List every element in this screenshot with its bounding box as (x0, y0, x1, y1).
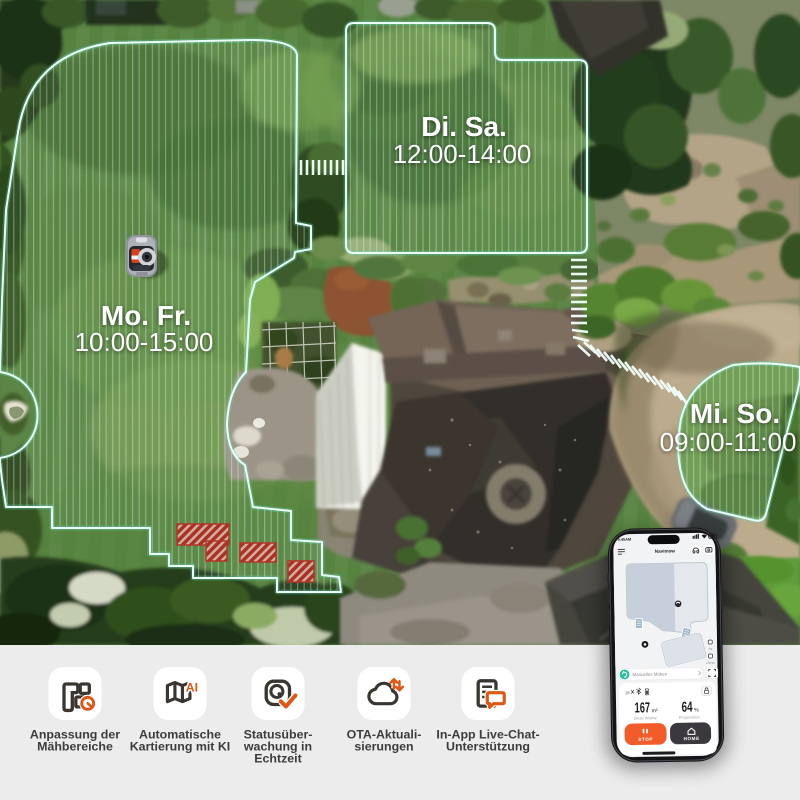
svg-text:12:00-14:00: 12:00-14:00 (393, 139, 532, 169)
svg-text:HOME: HOME (684, 736, 700, 741)
svg-text:10:00-15:00: 10:00-15:00 (75, 327, 214, 357)
svg-text:m²: m² (652, 708, 658, 714)
svg-text:Unterstützung: Unterstützung (446, 740, 530, 754)
svg-text:Progression: Progression (679, 714, 700, 719)
svg-text:AI: AI (186, 680, 198, 694)
svg-text:167: 167 (634, 700, 650, 716)
svg-text:Mi. So.: Mi. So. (690, 398, 780, 429)
svg-text:64: 64 (681, 700, 692, 716)
svg-text:sierungen: sierungen (354, 740, 413, 754)
svg-text:09:00-11:00: 09:00-11:00 (660, 427, 797, 457)
svg-text:26hour: 26hour (706, 661, 715, 665)
svg-text:26: 26 (625, 691, 629, 695)
svg-text:9:45AM: 9:45AM (618, 538, 632, 542)
svg-text:Di. Sa.: Di. Sa. (421, 111, 507, 142)
svg-text:Mähbereiche: Mähbereiche (37, 740, 113, 754)
svg-text:Echtzeit: Echtzeit (254, 752, 302, 766)
svg-text:Navimow: Navimow (655, 548, 676, 553)
svg-text:STOP: STOP (638, 737, 653, 742)
svg-text:Kartierung mit KI: Kartierung mit KI (130, 740, 231, 754)
svg-text:%: % (694, 707, 699, 713)
svg-text:Manuelles Mähen: Manuelles Mähen (632, 671, 667, 677)
svg-text:Diese Woche: Diese Woche (634, 715, 657, 720)
svg-text:4hr: 4hr (708, 647, 712, 651)
